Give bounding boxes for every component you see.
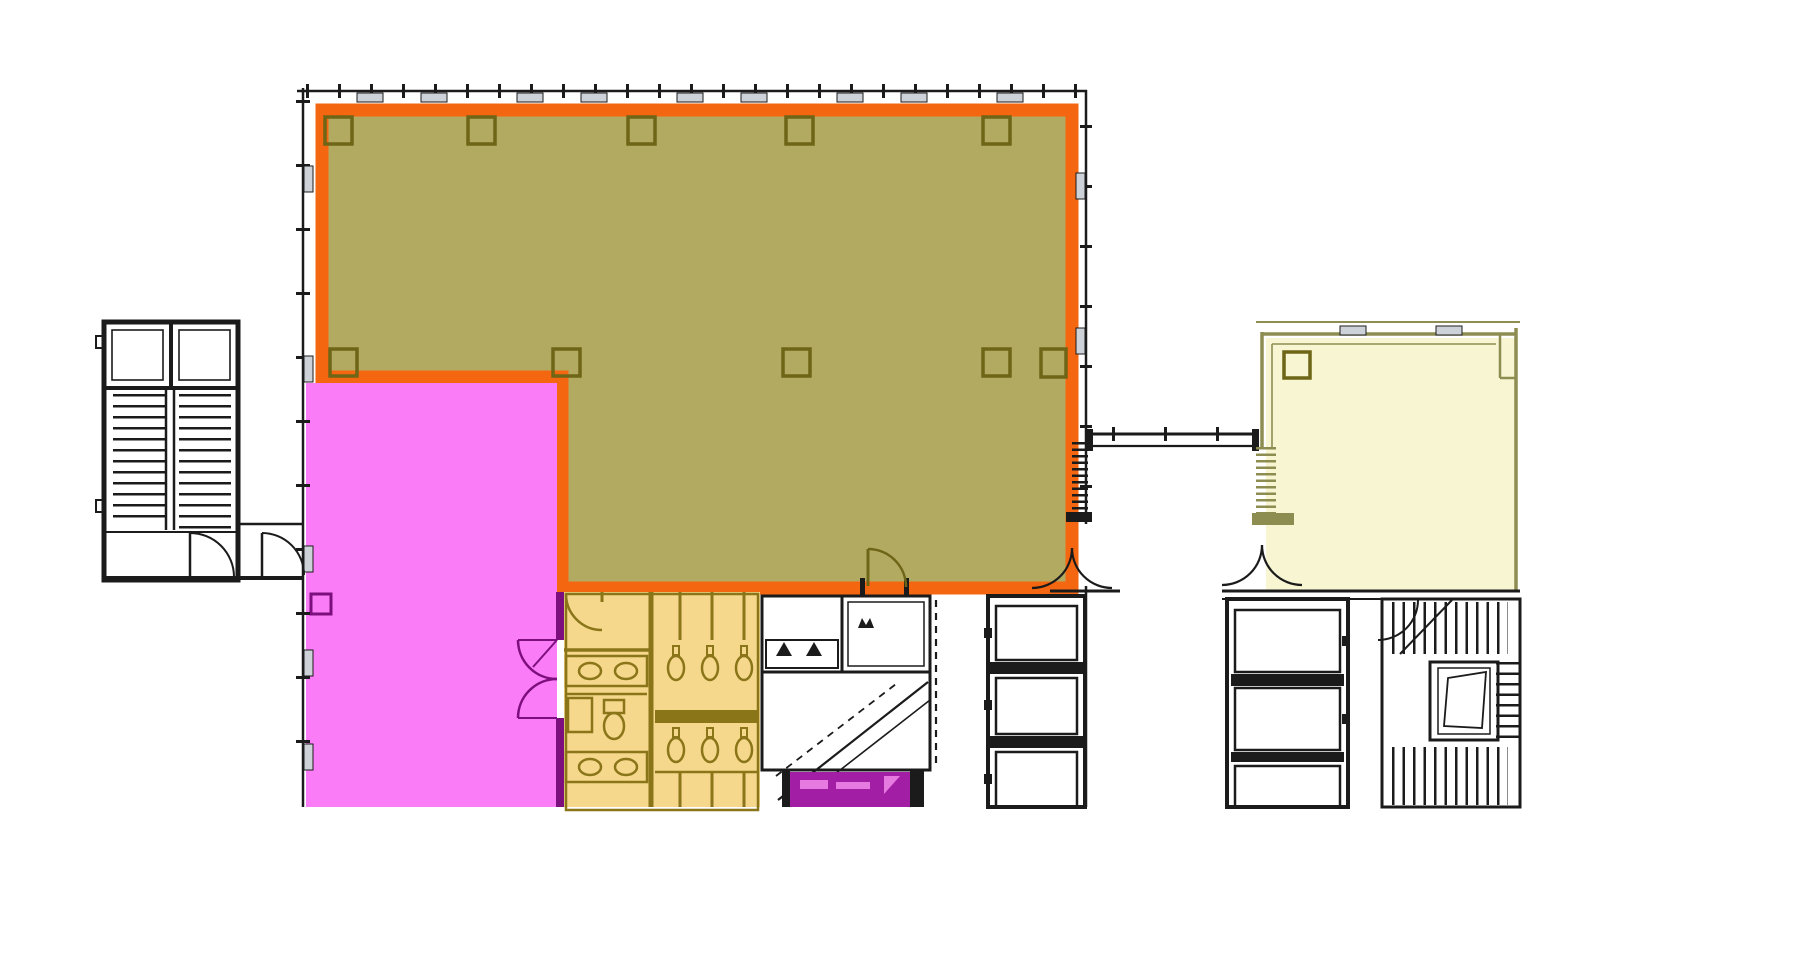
- elevator-shaft: [1235, 688, 1340, 750]
- elevator-door-mark: [984, 700, 992, 710]
- east-core: [1227, 599, 1520, 807]
- window-sill: [1076, 173, 1085, 199]
- stair-shaft-flap: [1444, 672, 1486, 728]
- elevator-door-mark: [984, 628, 992, 638]
- window-sill: [304, 166, 313, 192]
- window-sill: [357, 93, 383, 102]
- elevator-shaft: [996, 752, 1077, 807]
- shaft-divider: [1231, 674, 1344, 686]
- restroom-zone: [564, 592, 760, 810]
- window-sill: [1436, 326, 1462, 335]
- corridor-doors: [190, 533, 304, 577]
- elevator-bank-outline: [988, 596, 1085, 807]
- counter: [766, 640, 838, 668]
- shaft-divider: [990, 736, 1083, 748]
- window-sill: [304, 744, 313, 770]
- vestibule-cell: [179, 330, 230, 380]
- pink-room-zone: [306, 383, 564, 807]
- main-elevator-bank: [984, 596, 1085, 807]
- shaft-hatch-cap: [1066, 512, 1092, 522]
- window-sill: [304, 546, 313, 572]
- bridge: [1086, 429, 1259, 451]
- bridge-post: [1086, 429, 1093, 451]
- shaft-divider: [990, 662, 1083, 674]
- window-sill: [901, 93, 927, 102]
- east-wall-stub: [1252, 513, 1294, 525]
- core-room-closet: [842, 596, 930, 672]
- purple-room-fixture: [800, 780, 828, 789]
- elevator-door-mark: [1342, 714, 1350, 724]
- east-wing-zone: [1266, 338, 1516, 590]
- pink-room-east-wall-upper: [556, 592, 564, 640]
- sink-mark-icon: [806, 642, 822, 656]
- pink-room-east-wall-lower: [556, 718, 564, 807]
- shaft-divider: [1231, 752, 1344, 762]
- sink-mark-icon: [776, 642, 792, 656]
- floor-plan-drawing: [0, 0, 1798, 978]
- core-room-escalator: [762, 672, 930, 770]
- window-sill: [304, 356, 313, 382]
- stair-shaft: [1430, 662, 1498, 740]
- vestibule-cell: [112, 330, 163, 380]
- core-room-kitchen: [762, 596, 842, 672]
- elevator-shaft: [1235, 610, 1340, 672]
- door-jamb: [860, 578, 865, 596]
- west-stair-tower: [96, 322, 304, 580]
- purple-room-west-wall: [782, 770, 790, 807]
- plumbing-wall: [655, 710, 758, 723]
- window-sill: [677, 93, 703, 102]
- door-arc-icon: [1222, 545, 1262, 585]
- door-arc-icon: [262, 533, 304, 575]
- floor-plan-canvas: [0, 0, 1798, 978]
- closet-glyph-icon: [858, 618, 874, 628]
- window-sill: [1076, 328, 1085, 354]
- window-sill: [837, 93, 863, 102]
- door-arc-icon: [190, 533, 234, 577]
- top-wall-window-sills: [357, 93, 1023, 102]
- closet-inner-line: [848, 602, 924, 666]
- pink-room-fill-lower: [306, 592, 556, 807]
- purple-room-fixture: [836, 782, 870, 789]
- escalator-line-dashed: [776, 684, 896, 776]
- door-arc-icon: [1378, 600, 1418, 640]
- window-sill: [304, 650, 313, 676]
- east-elevator-bank: [1227, 599, 1350, 807]
- east-stair: [1382, 599, 1520, 807]
- elevator-door-mark: [984, 774, 992, 784]
- window-sill: [421, 93, 447, 102]
- elevator-shaft: [996, 678, 1077, 734]
- elevator-door-mark: [1342, 636, 1350, 646]
- elevator-shaft: [996, 606, 1077, 660]
- window-sill: [1340, 326, 1366, 335]
- window-sill: [517, 93, 543, 102]
- window-sill: [581, 93, 607, 102]
- elevator-bank-outline: [1227, 599, 1348, 807]
- purple-service-room-zone: [782, 770, 924, 807]
- window-sill: [741, 93, 767, 102]
- purple-room-east-wall: [910, 770, 924, 807]
- elevator-shaft: [1235, 766, 1340, 807]
- window-sill: [997, 93, 1023, 102]
- east-wing-fill: [1266, 338, 1516, 590]
